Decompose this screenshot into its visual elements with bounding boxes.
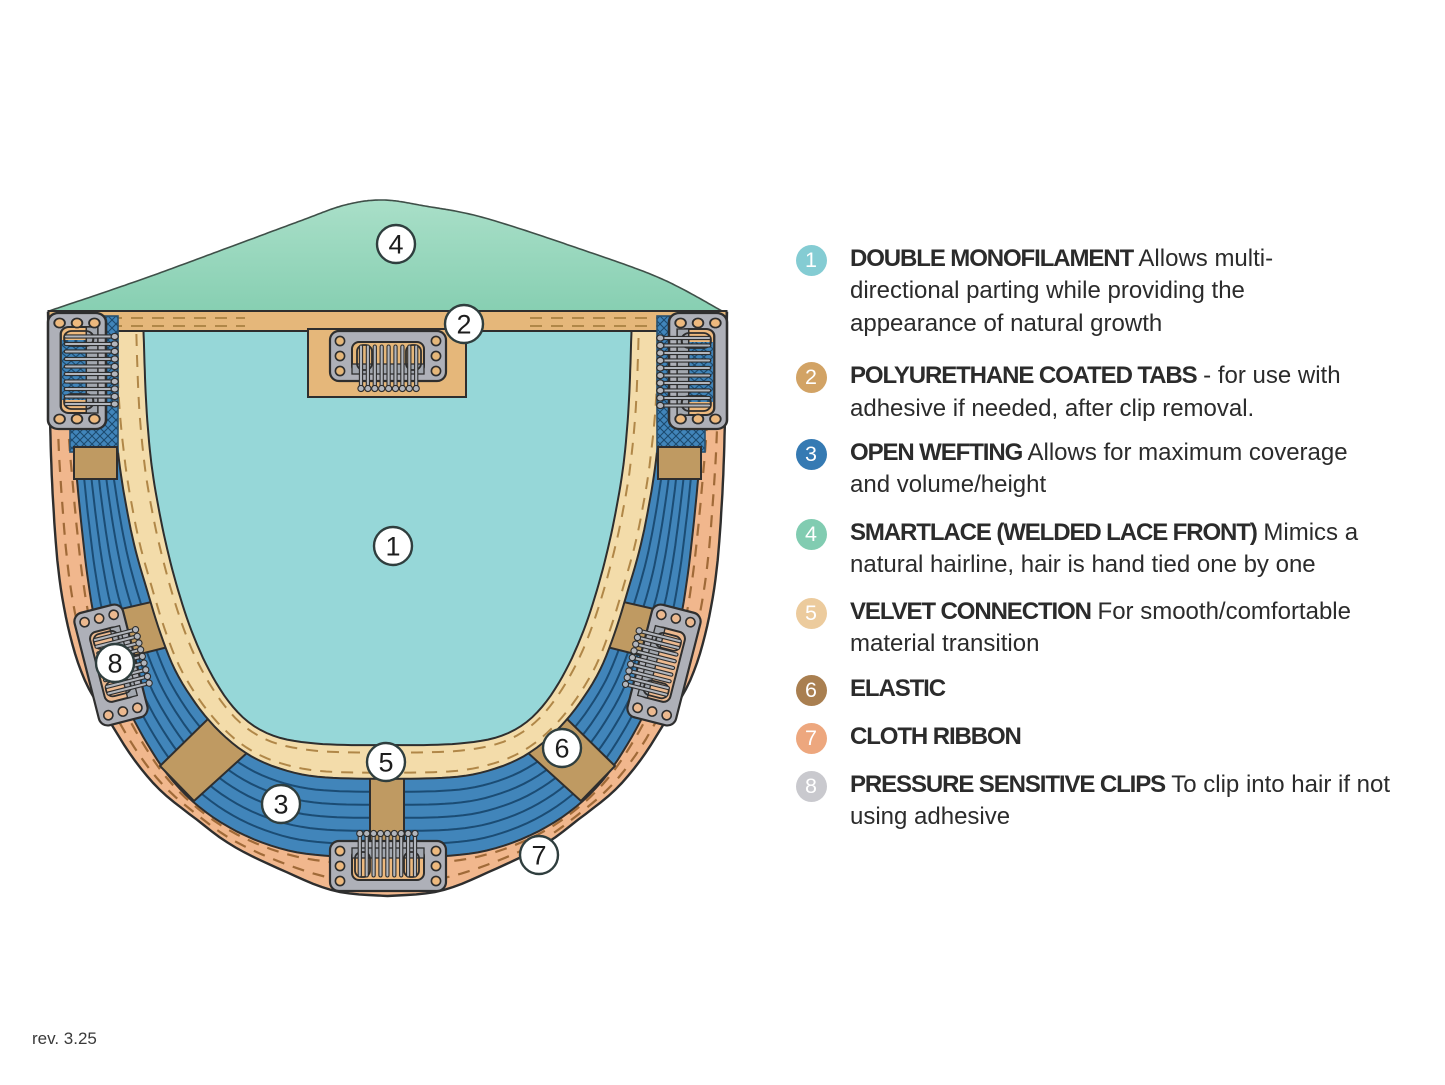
svg-text:7: 7 (531, 841, 546, 871)
svg-text:2: 2 (456, 310, 471, 340)
svg-text:6: 6 (554, 734, 569, 764)
svg-text:1: 1 (385, 532, 400, 562)
svg-text:8: 8 (107, 649, 122, 679)
svg-text:4: 4 (388, 230, 403, 260)
svg-text:5: 5 (378, 748, 393, 778)
svg-text:3: 3 (273, 790, 288, 820)
